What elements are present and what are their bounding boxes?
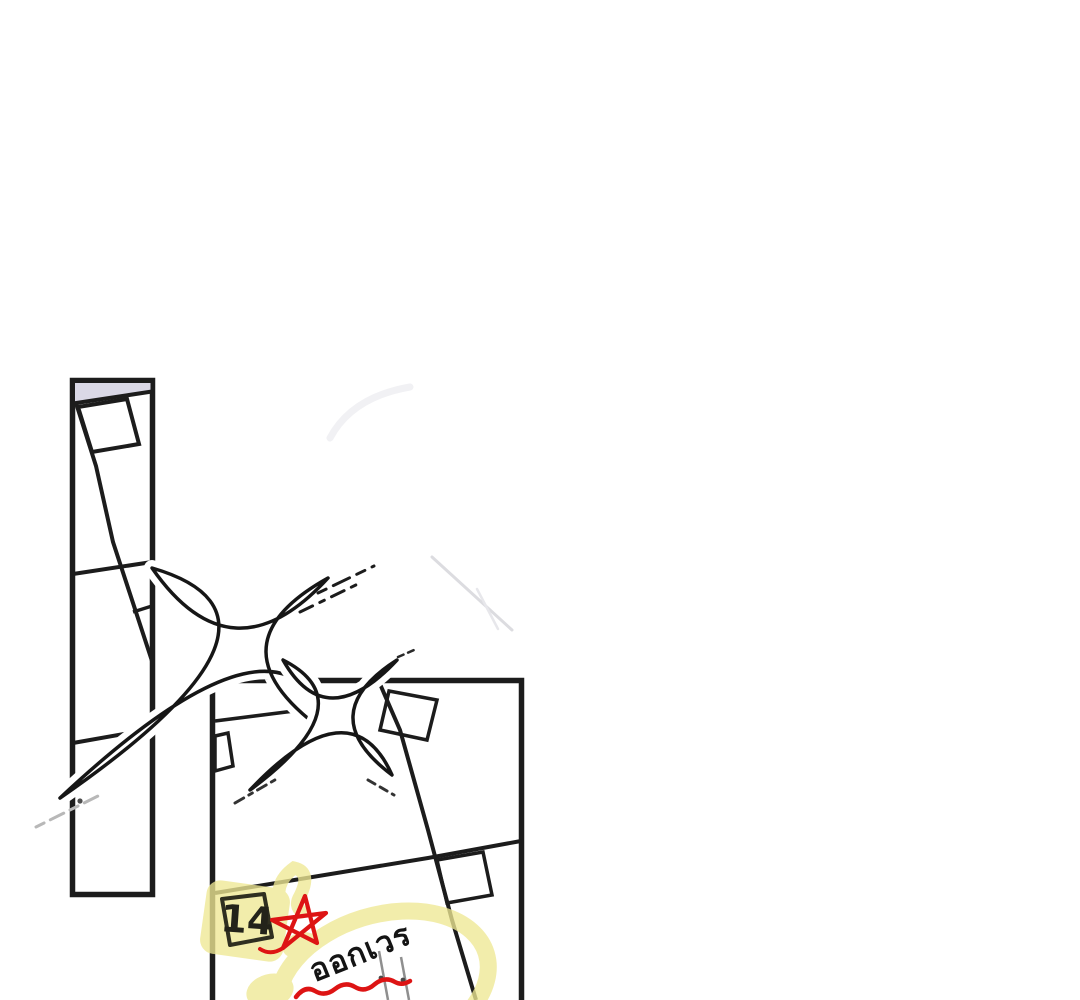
ghost-ray — [432, 557, 512, 630]
date-number: 14 — [219, 896, 275, 944]
calendar-column-line — [76, 403, 152, 661]
calendar-date-cell — [380, 691, 437, 740]
comic-artwork: 14 ออกเวร — [0, 0, 1080, 1000]
calendar-date-cell — [437, 852, 492, 903]
sparkle-effects — [36, 566, 414, 827]
calendar-row-line — [73, 562, 152, 574]
calendar-date-cell — [215, 733, 233, 771]
sparkle-speck — [77, 798, 82, 803]
ghost-arc — [330, 387, 410, 438]
calendar-row-line — [215, 841, 521, 893]
ghost-sparkle-rays — [330, 387, 512, 630]
left-calendar-panel — [73, 381, 153, 895]
red-wavy-underline — [296, 979, 410, 997]
left-panel-frame — [73, 381, 153, 895]
ghost-ray — [477, 589, 498, 629]
comic-page: 14 ออกเวร — [0, 0, 1080, 1000]
